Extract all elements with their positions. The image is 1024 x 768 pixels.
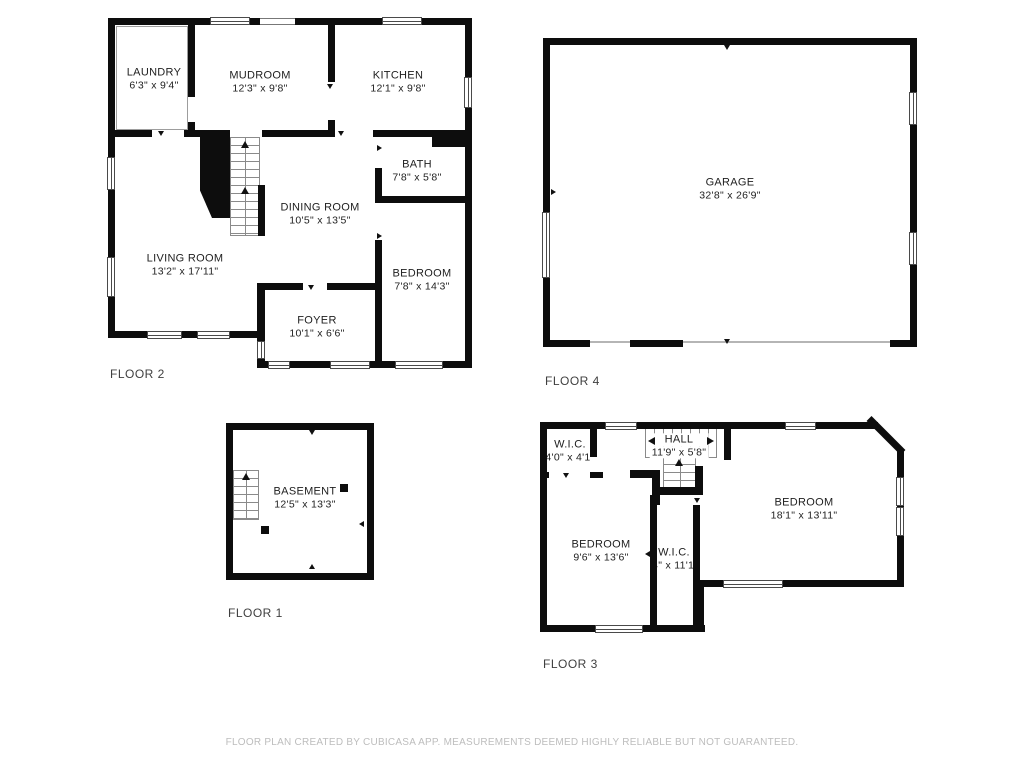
wall xyxy=(226,423,374,430)
room-label-living: LIVING ROOM 13'2" x 17'11" xyxy=(147,252,224,277)
window xyxy=(107,157,115,190)
window xyxy=(395,361,443,369)
wall xyxy=(375,196,465,203)
wall xyxy=(543,38,550,347)
room-dims: 10'1" x 6'6" xyxy=(289,327,344,339)
door-marker xyxy=(338,131,344,136)
room-label-hall: HALL 11'9" x 5'8" xyxy=(650,433,709,458)
room-name: BEDROOM xyxy=(393,267,452,280)
wall xyxy=(328,25,335,82)
window xyxy=(605,422,637,430)
window xyxy=(147,331,182,339)
room-dims: 11'9" x 5'8" xyxy=(650,446,709,458)
disclaimer-text: FLOOR PLAN CREATED BY CUBICASA APP. MEAS… xyxy=(0,737,1024,748)
wall xyxy=(367,423,374,580)
stair-direction-arrow xyxy=(241,141,249,148)
stair-direction-arrow xyxy=(707,437,714,445)
window xyxy=(909,92,917,125)
room-label-wic-2: W.I.C. '4" x 11'1" xyxy=(650,546,698,571)
wall xyxy=(327,283,375,290)
wall xyxy=(543,340,590,347)
wall xyxy=(910,38,917,347)
wall xyxy=(724,429,731,460)
room-dims: 6'3" x 9'4" xyxy=(127,79,181,91)
door-marker xyxy=(309,564,315,569)
room-name: LIVING ROOM xyxy=(147,252,224,265)
window xyxy=(268,361,290,369)
wall xyxy=(373,130,465,137)
wall xyxy=(108,130,152,137)
stair-direction-arrow xyxy=(675,459,683,466)
wall xyxy=(650,495,657,632)
wall xyxy=(695,466,703,495)
wall xyxy=(258,185,265,236)
window xyxy=(107,257,115,297)
room-label-garage: GARAGE 32'8" x 26'9" xyxy=(699,176,761,201)
window xyxy=(595,625,643,633)
room-name: BATH xyxy=(392,158,441,171)
room-label-bedroom-f2: BEDROOM 7'8" x 14'3" xyxy=(393,267,452,292)
wall xyxy=(226,423,233,580)
wall xyxy=(432,137,465,147)
wall xyxy=(465,18,472,368)
door-marker xyxy=(308,285,314,290)
window xyxy=(909,232,917,265)
room-dims: 12'5" x 13'3" xyxy=(274,498,337,510)
wall xyxy=(693,505,700,632)
window xyxy=(330,361,370,369)
floor-4-label: FLOOR 4 xyxy=(545,374,600,388)
wall xyxy=(188,25,195,97)
window xyxy=(723,580,783,588)
door-marker xyxy=(377,233,382,239)
room-name: KITCHEN xyxy=(370,69,425,82)
window xyxy=(785,422,816,430)
room-dims: 7'8" x 5'8" xyxy=(392,171,441,183)
room-label-bath: BATH 7'8" x 5'8" xyxy=(392,158,441,183)
wall xyxy=(328,120,335,137)
wall xyxy=(590,472,603,478)
wall xyxy=(540,422,547,632)
window xyxy=(257,341,265,359)
door-marker xyxy=(551,189,556,195)
room-name: DINING ROOM xyxy=(280,201,359,214)
wall xyxy=(660,487,697,495)
wall xyxy=(543,38,917,45)
door-marker xyxy=(309,430,315,435)
wall xyxy=(262,130,335,137)
wall xyxy=(264,283,303,290)
wall xyxy=(540,472,549,478)
stair-direction-arrow xyxy=(242,473,250,480)
door-marker xyxy=(724,45,730,50)
room-name: BEDROOM xyxy=(572,538,631,551)
room-dims: 4'0" x 4'1" xyxy=(545,451,594,463)
room-label-laundry: LAUNDRY 6'3" x 9'4" xyxy=(127,66,181,91)
room-label-foyer: FOYER 10'1" x 6'6" xyxy=(289,314,344,339)
room-label-bedroom-f3-right: BEDROOM 18'1" x 13'11" xyxy=(771,496,838,521)
room-dims: 9'6" x 13'6" xyxy=(572,551,631,563)
stair-wall xyxy=(200,137,230,218)
door-marker xyxy=(724,339,730,344)
room-label-dining: DINING ROOM 10'5" x 13'5" xyxy=(280,201,359,226)
support-post xyxy=(340,484,348,492)
floor-1-label: FLOOR 1 xyxy=(228,606,283,620)
wall xyxy=(590,429,597,457)
room-name: BASEMENT xyxy=(274,485,337,498)
window xyxy=(382,17,422,25)
room-dims: 7'8" x 14'3" xyxy=(393,280,452,292)
room-dims: 12'1" x 9'8" xyxy=(370,82,425,94)
wall xyxy=(630,340,683,347)
room-dims: 18'1" x 13'11" xyxy=(771,509,838,521)
door-marker xyxy=(158,131,164,136)
garage-door-line xyxy=(590,341,630,343)
floor-plan-canvas: LAUNDRY 6'3" x 9'4" MUDROOM 12'3" x 9'8"… xyxy=(0,0,1024,768)
room-label-kitchen: KITCHEN 12'1" x 9'8" xyxy=(370,69,425,94)
room-label-mudroom: MUDROOM 12'3" x 9'8" xyxy=(229,69,290,94)
wall xyxy=(184,130,230,137)
room-name: W.I.C. xyxy=(650,546,698,559)
door-marker xyxy=(359,521,364,527)
room-label-bedroom-f3-left: BEDROOM 9'6" x 13'6" xyxy=(572,538,631,563)
room-name: GARAGE xyxy=(699,176,761,189)
door-marker xyxy=(563,473,569,478)
room-dims: 32'8" x 26'9" xyxy=(699,189,761,201)
door-marker xyxy=(694,498,700,503)
room-name: BEDROOM xyxy=(771,496,838,509)
door-opening xyxy=(260,18,295,25)
window xyxy=(896,507,904,536)
room-dims: 12'3" x 9'8" xyxy=(229,82,290,94)
stair-direction-arrow xyxy=(241,187,249,194)
room-name: W.I.C. xyxy=(545,438,594,451)
garage-door-line xyxy=(683,341,890,343)
floor-3-label: FLOOR 3 xyxy=(543,657,598,671)
room-name: MUDROOM xyxy=(229,69,290,82)
window xyxy=(197,331,230,339)
room-dims: 10'5" x 13'5" xyxy=(280,214,359,226)
wall xyxy=(226,573,374,580)
window xyxy=(542,212,550,278)
room-name: LAUNDRY xyxy=(127,66,181,79)
stair-direction-arrow xyxy=(648,437,655,445)
wall xyxy=(890,340,917,347)
room-label-basement: BASEMENT 12'5" x 13'3" xyxy=(274,485,337,510)
door-marker xyxy=(377,145,382,151)
door-marker xyxy=(327,84,333,89)
room-label-wic-1: W.I.C. 4'0" x 4'1" xyxy=(545,438,594,463)
support-post xyxy=(261,526,269,534)
window xyxy=(464,77,472,108)
room-dims: '4" x 11'1" xyxy=(650,559,698,571)
wall xyxy=(540,422,878,429)
wall xyxy=(108,331,265,338)
window xyxy=(896,477,904,506)
room-name: FOYER xyxy=(289,314,344,327)
floor-2-label: FLOOR 2 xyxy=(110,367,165,381)
wall xyxy=(375,240,382,361)
room-name: HALL xyxy=(650,433,709,446)
window xyxy=(210,17,250,25)
room-dims: 13'2" x 17'11" xyxy=(147,265,224,277)
door-marker xyxy=(645,551,650,557)
